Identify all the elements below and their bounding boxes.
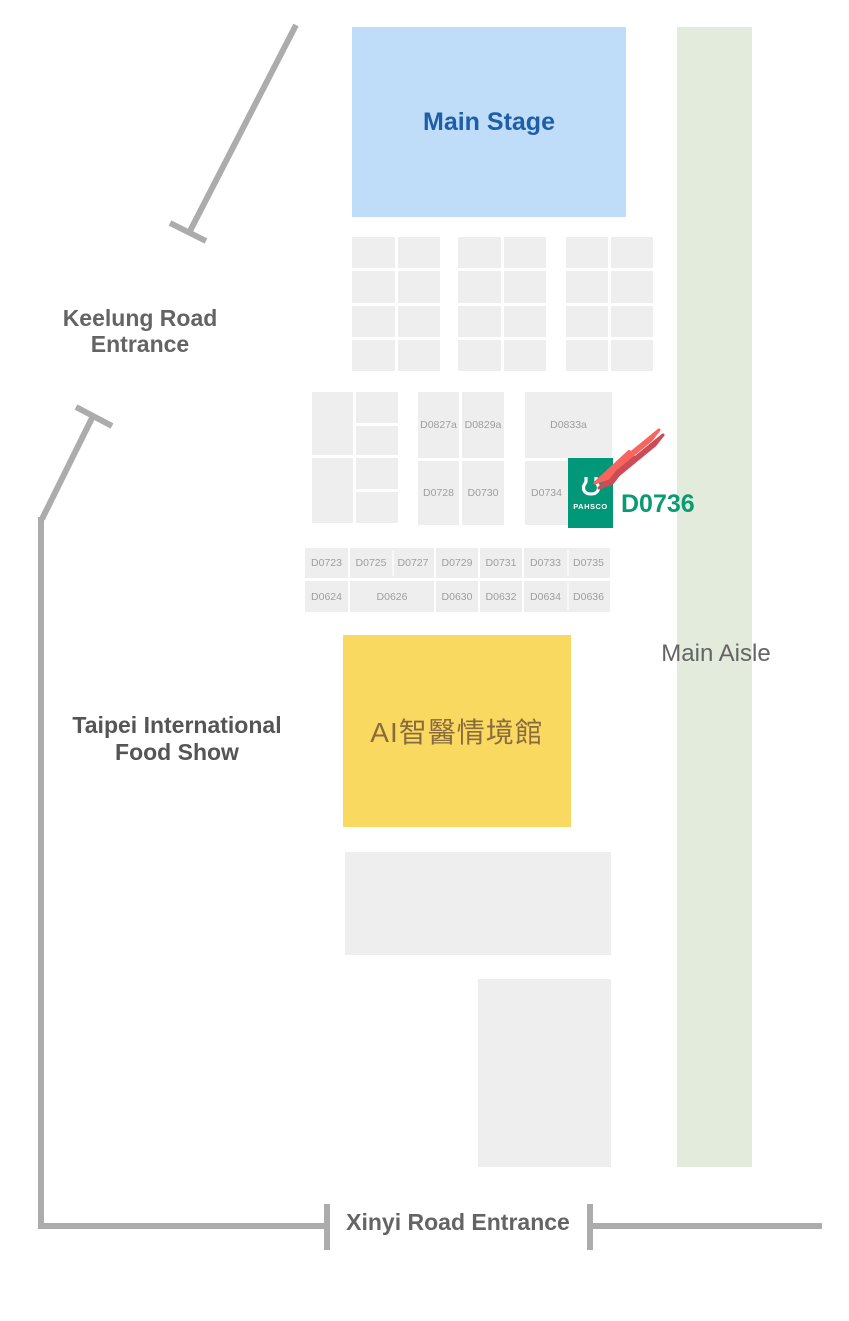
booth-D0729: D0729 xyxy=(436,548,478,578)
booth-D0730: D0730 xyxy=(462,461,504,525)
booth-cell xyxy=(312,458,353,523)
pahsco-wordmark: PAHSCO xyxy=(573,502,608,511)
booth-cell xyxy=(356,426,398,455)
wall-upper-diagonal xyxy=(190,25,296,231)
location-arrow-icon xyxy=(591,427,667,493)
keelung-entrance-label: Keelung Road Entrance xyxy=(30,306,250,358)
booth-D0827a: D0827a xyxy=(418,392,459,458)
booth-divider xyxy=(567,583,569,610)
xinyi-entrance-label: Xinyi Road Entrance xyxy=(338,1210,578,1236)
main-stage: Main Stage xyxy=(352,27,626,217)
booth-D0725-D0727: D0725 D0727 xyxy=(350,548,434,578)
unlabeled-hall-block-wide xyxy=(345,852,611,955)
wall-lower-diagonal xyxy=(42,416,93,519)
booth-cell xyxy=(356,492,398,523)
booth-grid-right xyxy=(566,237,653,371)
booth-grid-center xyxy=(458,237,546,371)
main-stage-label: Main Stage xyxy=(423,108,555,137)
booth-divider xyxy=(567,550,569,576)
booth-cell xyxy=(356,458,398,489)
entrance-tick-upper xyxy=(170,223,206,241)
booth-D0728: D0728 xyxy=(418,461,459,525)
booth-divider xyxy=(392,550,394,576)
booth-D0624: D0624 xyxy=(305,581,348,612)
booth-D0723: D0723 xyxy=(305,548,348,578)
booth-D0626: D0626 xyxy=(350,581,434,612)
booth-D0731: D0731 xyxy=(480,548,522,578)
booth-D0634-D0636: D0634 D0636 xyxy=(524,581,610,612)
main-aisle-label: Main Aisle xyxy=(640,641,792,668)
booth-D0733-D0735: D0733 D0735 xyxy=(524,548,610,578)
food-show-label: Taipei International Food Show xyxy=(47,712,307,766)
unlabeled-hall-block-tall xyxy=(478,979,611,1167)
booth-D0829a: D0829a xyxy=(462,392,504,458)
pavilion-label: AI智醫情境館 xyxy=(370,711,543,751)
ai-medical-pavilion: AI智醫情境館 xyxy=(343,635,571,827)
booth-grid-left xyxy=(352,237,440,371)
booth-cell xyxy=(356,392,398,423)
booth-cell xyxy=(312,392,353,455)
booth-D0630: D0630 xyxy=(436,581,478,612)
booth-D0632: D0632 xyxy=(480,581,522,612)
highlight-booth-number: D0736 xyxy=(621,490,695,519)
booth-D0734: D0734 xyxy=(525,461,568,525)
exhibition-floor-map: Main Stage D0827a D0829a D0728 D0730 D08… xyxy=(0,0,849,1321)
main-aisle-strip xyxy=(677,27,752,1167)
